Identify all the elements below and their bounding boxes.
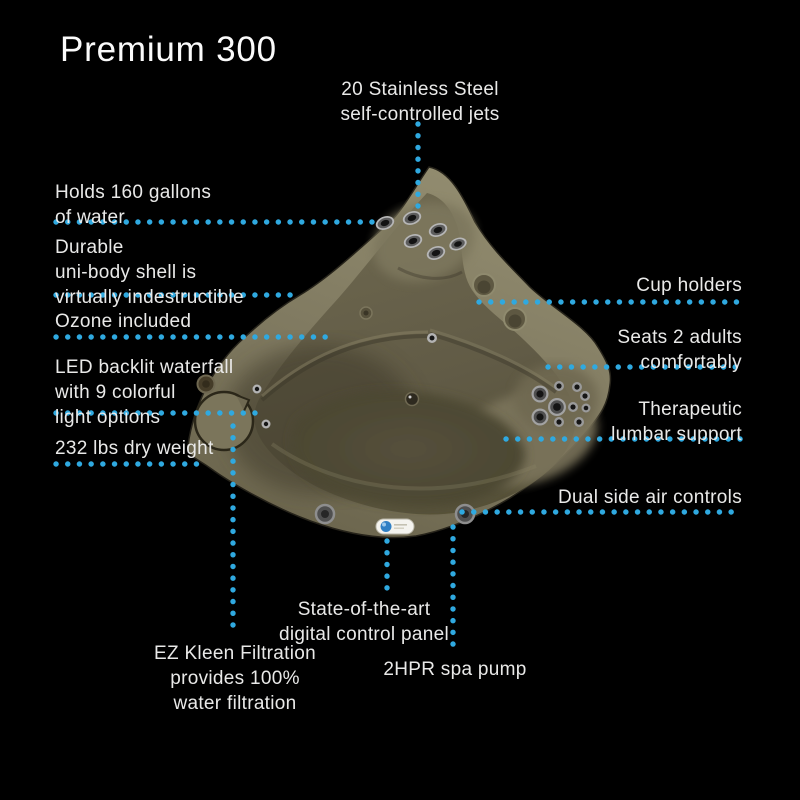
callout-pump: 2HPR spa pump bbox=[345, 657, 565, 682]
air-control-right bbox=[456, 505, 474, 523]
jet-mid bbox=[427, 333, 437, 343]
callout-control-panel: State-of-the-art digital control panel bbox=[254, 597, 474, 647]
air-control-left bbox=[316, 505, 334, 523]
drain-fitting bbox=[406, 393, 419, 406]
callout-dry-weight: 232 lbs dry weight bbox=[55, 436, 214, 461]
callout-ozone: Ozone included bbox=[55, 309, 191, 334]
cup-holder-1 bbox=[473, 274, 495, 296]
product-infographic: Premium 300 20 Stainless Steel self-cont… bbox=[0, 0, 800, 800]
cup-holder-2 bbox=[504, 308, 526, 330]
callout-filtration: EZ Kleen Filtration provides 100% water … bbox=[125, 641, 345, 716]
callout-waterfall: LED backlit waterfall with 9 colorful li… bbox=[55, 355, 233, 430]
jet-left-lower bbox=[262, 420, 271, 429]
callout-air-controls: Dual side air controls bbox=[558, 485, 742, 510]
callout-jets: 20 Stainless Steel self-controlled jets bbox=[310, 77, 530, 127]
page-title: Premium 300 bbox=[60, 30, 277, 70]
fitting-upper bbox=[360, 307, 372, 319]
control-panel bbox=[376, 519, 414, 534]
callout-cup-holders: Cup holders bbox=[636, 273, 742, 298]
callout-seating: Seats 2 adults comfortably bbox=[617, 325, 742, 375]
callout-shell: Durable uni-body shell is virtually inde… bbox=[55, 235, 244, 310]
callout-capacity: Holds 160 gallons of water bbox=[55, 180, 211, 230]
callout-lumbar: Therapeutic lumbar support bbox=[611, 397, 742, 447]
jet-left-upper bbox=[253, 385, 262, 394]
